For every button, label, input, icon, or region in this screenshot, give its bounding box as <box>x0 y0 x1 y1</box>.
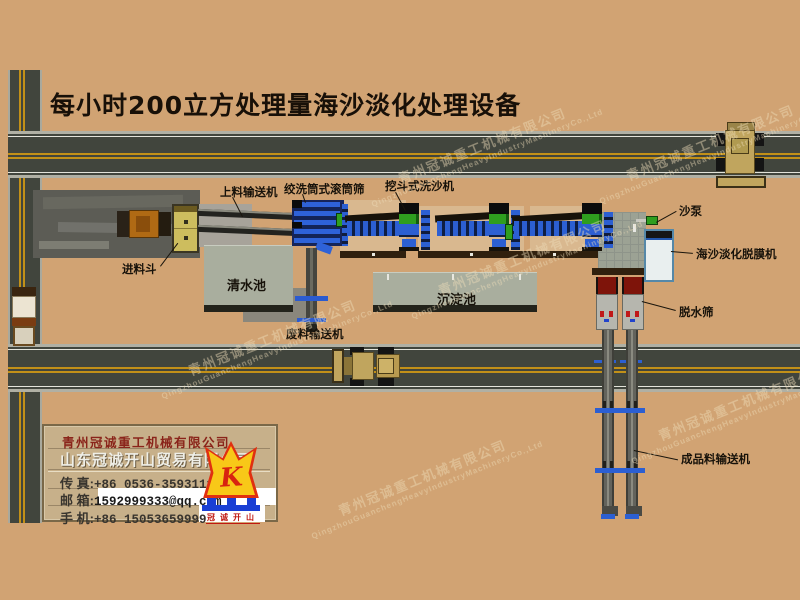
waste-conveyor-belt <box>306 248 317 328</box>
label-clean-water-pool: 清水池 <box>227 275 266 294</box>
conveyor-tick <box>610 401 613 408</box>
leader-line <box>656 211 677 223</box>
conveyor-support <box>595 468 621 473</box>
truck-left-road <box>11 287 37 347</box>
conveyor-tick <box>603 401 606 408</box>
conveyor-foot <box>625 514 639 519</box>
desalination-machine <box>644 229 674 282</box>
label-waste-conveyor: 废料输送机 <box>286 326 344 342</box>
wheel-loader-stockpile <box>116 208 174 240</box>
wheel-loader-bottom-road <box>332 346 404 387</box>
conveyor-support <box>619 408 645 413</box>
label-bucket-washer: 挖斗式洗沙机 <box>385 178 454 194</box>
label-feed-conveyor: 上料输送机 <box>220 184 278 200</box>
road-top-horizontal <box>8 131 800 178</box>
platform-edge <box>340 251 406 258</box>
wheel-loader-top-road <box>714 122 768 188</box>
label-drum-screen: 绞洗筒式滚筒筛 <box>284 181 365 197</box>
conveyor-support <box>619 468 645 473</box>
label-sedimentation-pool: 沉淀池 <box>437 289 476 308</box>
pump-pipe <box>636 219 646 222</box>
logo-base-tab <box>247 498 256 505</box>
road-bottom-horizontal <box>8 344 800 392</box>
logo-text: 冠诚开山 <box>206 512 260 524</box>
company-info-card: 青州冠诚重工机械有限公司 山东冠诚开山贸易有限公司 传 真:+86 0536-3… <box>42 424 278 522</box>
logo-base-tab <box>207 498 216 505</box>
page-title: 每小时200立方处理量海沙淡化处理设备 <box>50 86 521 122</box>
label-product-conveyor: 成品料输送机 <box>681 451 750 467</box>
conveyor-tick <box>634 461 637 468</box>
label-desalination-machine: 海沙淡化脱膜机 <box>696 246 777 262</box>
email-row: 邮 箱:1592999333@qq.com <box>60 490 221 509</box>
conveyor-tick <box>610 461 613 468</box>
pump-pipe <box>633 224 636 232</box>
conveyor-tick <box>627 461 630 468</box>
conveyor-tick <box>634 401 637 408</box>
label-feed-hopper: 进料斗 <box>122 261 157 277</box>
phone-row: 手 机:+86 15053659999 <box>60 508 206 527</box>
plant-layout-diagram: 上料输送机 绞洗筒式滚筒筛 挖斗式洗沙机 进料斗 清水池 沉淀池 废料输送机 沙… <box>0 0 800 600</box>
conveyor-tick <box>603 461 606 468</box>
conveyor-support <box>595 408 621 413</box>
platform-edge <box>508 251 600 258</box>
product-conveyor-belt <box>602 330 614 516</box>
conveyor-tick <box>627 401 630 408</box>
logo-base-tab <box>227 498 236 505</box>
dewatering-screen-machine <box>596 277 618 330</box>
label-dewatering-screen: 脱水筛 <box>679 304 714 320</box>
label-sand-pump: 沙泵 <box>679 203 702 219</box>
conveyor-support <box>297 318 326 322</box>
logo-base-bar <box>202 505 260 511</box>
drum-screen-machine <box>292 200 344 246</box>
leader-line <box>634 450 678 460</box>
leader-line <box>671 251 693 254</box>
watermark: 青州冠诚重工机械有限公司QingzhouGuanchengHeavyIndust… <box>304 424 545 542</box>
company-logo: K 冠诚开山 <box>202 441 262 523</box>
product-conveyor-belt <box>626 330 638 516</box>
conveyor-support <box>295 296 328 301</box>
logo-letter: K <box>219 462 244 494</box>
leader-line <box>642 301 676 311</box>
platform-edge <box>592 268 650 275</box>
dewatering-screen-machine <box>622 277 644 330</box>
conveyor-foot <box>601 514 615 519</box>
